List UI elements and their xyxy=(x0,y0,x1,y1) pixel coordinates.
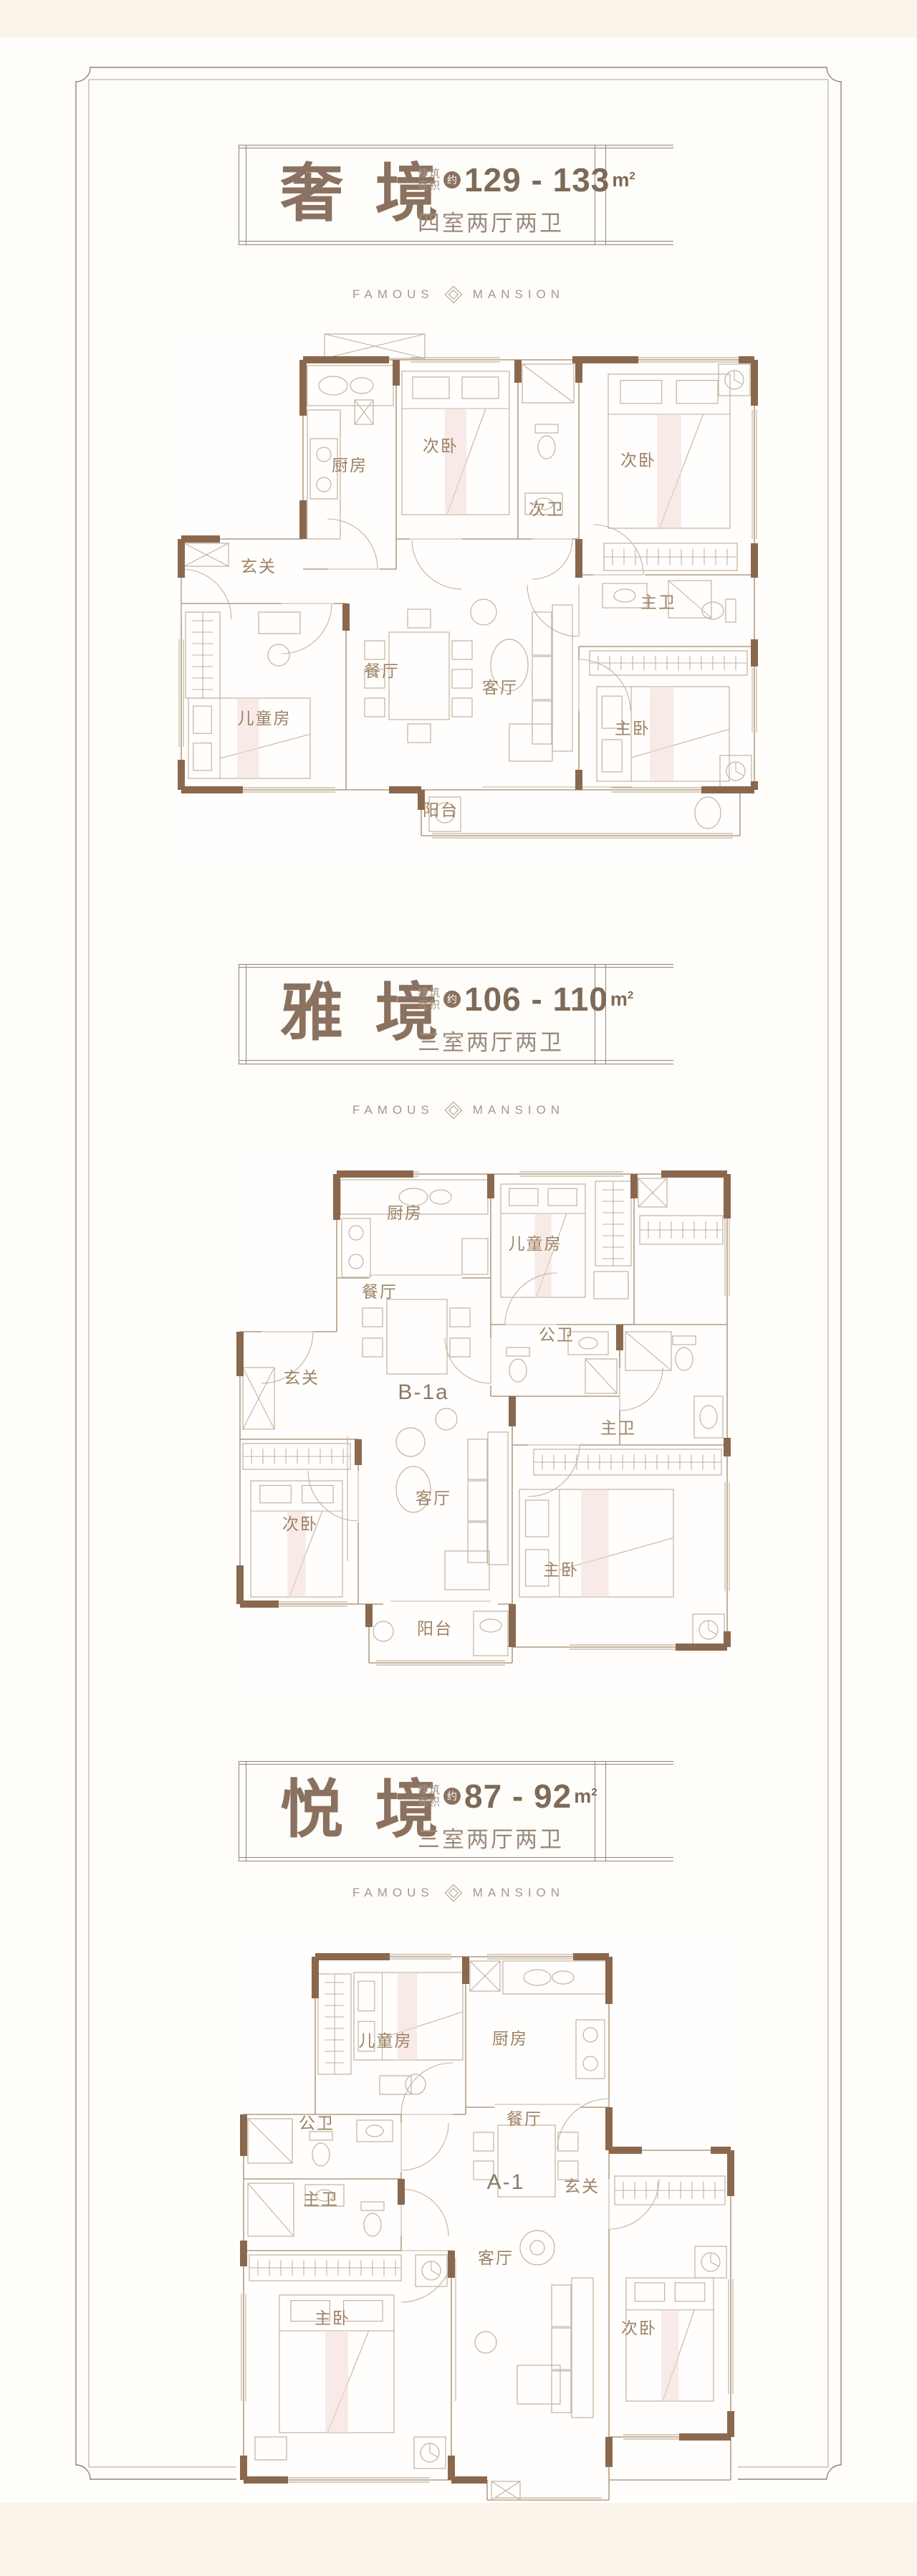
svg-text:主卫: 主卫 xyxy=(303,2190,339,2208)
approx-badge: 约 xyxy=(443,991,461,1008)
brand-right: MANSION xyxy=(473,1103,565,1117)
floor-plan-elegant: 厨房儿童房餐厅公卫玄关B-1a次卧客厅主卫主卧阳台 xyxy=(233,1153,734,1697)
diamond-icon xyxy=(443,1882,464,1904)
svg-text:主卫: 主卫 xyxy=(600,1418,636,1437)
brand-left: FAMOUS xyxy=(352,287,434,302)
brand-left: FAMOUS xyxy=(352,1103,434,1117)
svg-text:客厅: 客厅 xyxy=(478,2248,514,2267)
svg-text:餐厅: 餐厅 xyxy=(506,2109,542,2128)
svg-text:次卫: 次卫 xyxy=(529,500,565,518)
plan-specs: 建筑面积 约 106 - 110 m2 三室两厅两卫 xyxy=(418,980,633,1056)
svg-text:玄关: 玄关 xyxy=(241,557,277,576)
svg-text:次卧: 次卧 xyxy=(423,437,458,455)
brand-right: MANSION xyxy=(473,1886,565,1900)
room-config: 三室两厅两卫 xyxy=(418,1821,597,1854)
floor-plan-joy: 儿童房厨房公卫主卫餐厅A-1玄关主卧客厅次卧 xyxy=(236,1935,738,2501)
svg-text:客厅: 客厅 xyxy=(482,678,518,697)
svg-text:次卧: 次卧 xyxy=(620,451,656,469)
brand-left: FAMOUS xyxy=(352,1886,434,1900)
area-range: 106 - 110 xyxy=(464,980,608,1019)
brand-divider: FAMOUS MANSION xyxy=(0,1882,917,1904)
title-box-joy: 悦 境 建筑面积 约 87 - 92 m2 三室两厅两卫 xyxy=(239,1761,673,1861)
title-box-luxury: 奢 境 建筑面积 约 129 - 133 m2 四室两厅两卫 xyxy=(239,145,673,245)
brand-divider: FAMOUS MANSION xyxy=(0,284,917,305)
plan-specs: 建筑面积 约 129 - 133 m2 四室两厅两卫 xyxy=(418,161,635,237)
poster-page: 奢 境 建筑面积 约 129 - 133 m2 四室两厅两卫 FAMOUS MA… xyxy=(0,0,917,2576)
svg-text:餐厅: 餐厅 xyxy=(364,662,400,680)
room-config: 三室两厅两卫 xyxy=(418,1024,633,1056)
svg-text:阳台: 阳台 xyxy=(417,1619,453,1638)
approx-badge: 约 xyxy=(443,171,461,189)
svg-text:客厅: 客厅 xyxy=(416,1489,451,1507)
area-unit: m2 xyxy=(610,988,633,1011)
svg-text:儿童房: 儿童房 xyxy=(359,2031,413,2050)
svg-text:公卫: 公卫 xyxy=(539,1325,575,1344)
svg-text:公卫: 公卫 xyxy=(299,2114,335,2132)
room-config: 四室两厅两卫 xyxy=(418,205,635,237)
area-prefix: 建筑面积 xyxy=(418,168,441,192)
svg-text:玄关: 玄关 xyxy=(564,2177,600,2195)
diamond-icon xyxy=(443,284,464,305)
svg-text:主卧: 主卧 xyxy=(315,2309,350,2327)
svg-text:阳台: 阳台 xyxy=(423,801,458,819)
svg-text:儿童房: 儿童房 xyxy=(509,1234,562,1253)
svg-text:次卧: 次卧 xyxy=(621,2319,657,2337)
area-range: 129 - 133 xyxy=(464,161,610,199)
floor-plan-luxury: 玄关厨房次卧次卫次卧主卫主卧儿童房餐厅客厅阳台 xyxy=(174,331,762,865)
area-prefix: 建筑面积 xyxy=(418,987,441,1011)
svg-text:主卧: 主卧 xyxy=(615,719,650,738)
svg-text:厨房: 厨房 xyxy=(492,2029,528,2048)
area-unit: m2 xyxy=(574,1785,597,1808)
area-unit: m2 xyxy=(612,169,635,191)
svg-text:厨房: 厨房 xyxy=(332,456,368,474)
svg-text:次卧: 次卧 xyxy=(282,1514,318,1533)
svg-text:餐厅: 餐厅 xyxy=(362,1282,398,1301)
plan-specs: 建筑面积 约 87 - 92 m2 三室两厅两卫 xyxy=(418,1777,597,1854)
title-box-elegant: 雅 境 建筑面积 约 106 - 110 m2 三室两厅两卫 xyxy=(239,964,673,1064)
svg-text:玄关: 玄关 xyxy=(284,1368,320,1387)
svg-text:主卧: 主卧 xyxy=(543,1560,579,1579)
svg-text:A-1: A-1 xyxy=(487,2170,525,2194)
diamond-icon xyxy=(443,1099,464,1121)
svg-text:主卫: 主卫 xyxy=(640,593,676,611)
svg-text:B-1a: B-1a xyxy=(398,1380,448,1404)
svg-text:厨房: 厨房 xyxy=(387,1203,423,1222)
brand-right: MANSION xyxy=(473,287,565,302)
brand-divider: FAMOUS MANSION xyxy=(0,1099,917,1121)
approx-badge: 约 xyxy=(443,1788,461,1805)
svg-text:儿童房: 儿童房 xyxy=(238,709,292,728)
area-range: 87 - 92 xyxy=(464,1777,572,1816)
area-prefix: 建筑面积 xyxy=(418,1784,441,1808)
